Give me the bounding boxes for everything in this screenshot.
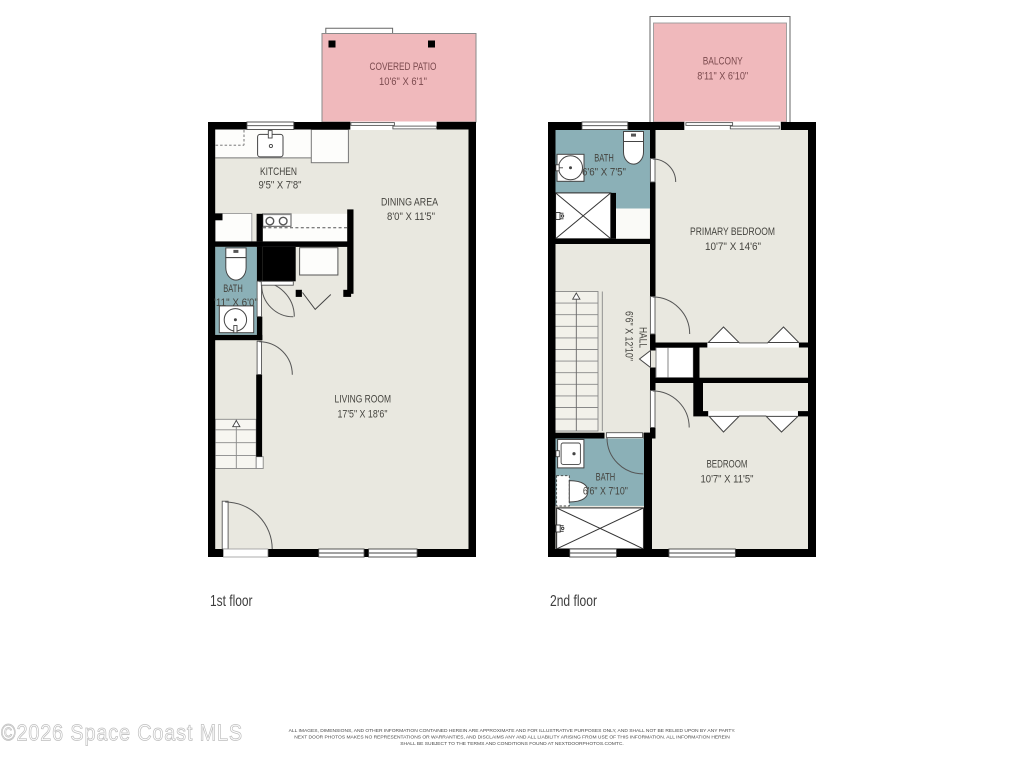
svg-text:2nd floor: 2nd floor: [550, 593, 598, 610]
svg-text:17'5" X 18'6": 17'5" X 18'6": [338, 408, 388, 420]
svg-text:BATH: BATH: [594, 153, 614, 165]
svg-text:8'11" X 6'10": 8'11" X 6'10": [697, 71, 748, 83]
svg-text:BATH: BATH: [223, 283, 243, 295]
svg-text:KITCHEN: KITCHEN: [260, 166, 297, 178]
svg-text:©2026 Space Coast MLS: ©2026 Space Coast MLS: [1, 720, 243, 746]
svg-text:'11" X 6'0": '11" X 6'0": [214, 297, 258, 309]
svg-text:1st floor: 1st floor: [210, 593, 253, 610]
svg-text:HALL: HALL: [637, 327, 649, 348]
svg-text:6'6" X 12'10": 6'6" X 12'10": [623, 311, 635, 361]
svg-text:DINING AREA: DINING AREA: [381, 197, 438, 209]
svg-text:10'7" X 11'5": 10'7" X 11'5": [701, 474, 754, 486]
svg-text:6'6" X 7'5": 6'6" X 7'5": [582, 167, 626, 179]
svg-text:BATH: BATH: [596, 471, 616, 483]
svg-text:BEDROOM: BEDROOM: [707, 459, 748, 471]
svg-text:9'5" X 7'8": 9'5" X 7'8": [259, 180, 302, 192]
svg-text:10'7" X 14'6": 10'7" X 14'6": [705, 241, 761, 253]
svg-text:COVERED PATIO: COVERED PATIO: [370, 61, 437, 73]
svg-text:ALL IMAGES, DIMENSIONS, AND OT: ALL IMAGES, DIMENSIONS, AND OTHER INFORM…: [289, 728, 736, 734]
svg-text:6'6" X 7'10": 6'6" X 7'10": [583, 486, 628, 498]
svg-text:NEXT DOOR PHOTOS MAKES NO REPR: NEXT DOOR PHOTOS MAKES NO REPRESENTATION…: [294, 735, 730, 741]
svg-text:BALCONY: BALCONY: [703, 56, 743, 68]
svg-text:PRIMARY BEDROOM: PRIMARY BEDROOM: [690, 226, 775, 238]
svg-text:8'0" X 11'5": 8'0" X 11'5": [387, 211, 435, 223]
svg-text:10'6" X 6'1": 10'6" X 6'1": [379, 76, 427, 88]
svg-text:LIVING ROOM: LIVING ROOM: [335, 394, 392, 406]
svg-text:SHALL BE SUBJECT TO THE TERMS: SHALL BE SUBJECT TO THE TERMS AND CONDIT…: [400, 741, 624, 747]
